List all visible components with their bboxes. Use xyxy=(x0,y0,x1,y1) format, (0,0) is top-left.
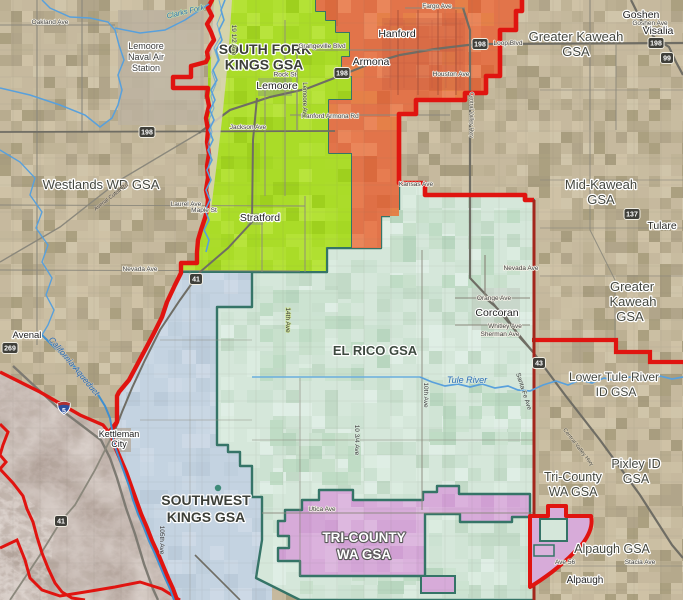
svg-text:10 3/4 Ave: 10 3/4 Ave xyxy=(353,425,360,456)
svg-text:KINGS GSA: KINGS GSA xyxy=(225,57,304,73)
svg-text:5: 5 xyxy=(62,408,66,415)
svg-text:198: 198 xyxy=(650,41,662,48)
svg-text:TRI-COUNTY: TRI-COUNTY xyxy=(322,530,405,545)
svg-text:Alpaugh: Alpaugh xyxy=(567,575,604,586)
svg-text:Jackson Ave: Jackson Ave xyxy=(230,124,267,131)
svg-text:Lemoore: Lemoore xyxy=(256,80,298,92)
svg-text:Lemoore Ave: Lemoore Ave xyxy=(301,82,307,118)
svg-text:Central Valley Hwy: Central Valley Hwy xyxy=(468,92,474,138)
svg-text:Stacia Ave: Stacia Ave xyxy=(625,559,656,566)
svg-text:Orange Ave: Orange Ave xyxy=(477,295,512,302)
svg-text:269: 269 xyxy=(4,346,16,353)
svg-text:Rock St: Rock St xyxy=(274,72,297,79)
svg-text:105th Ave: 105th Ave xyxy=(158,526,165,555)
svg-text:Mid-Kaweah: Mid-Kaweah xyxy=(565,177,637,192)
svg-text:Hanford: Hanford xyxy=(378,28,416,40)
svg-text:Nevada Ave: Nevada Ave xyxy=(504,265,539,272)
svg-text:Westlands WD GSA: Westlands WD GSA xyxy=(43,177,160,192)
svg-text:Kettleman: Kettleman xyxy=(99,429,140,439)
svg-text:Utica Ave: Utica Ave xyxy=(308,506,336,513)
svg-text:Maple St: Maple St xyxy=(191,207,217,214)
svg-text:Oakland Ave: Oakland Ave xyxy=(32,19,69,26)
svg-text:GSA: GSA xyxy=(587,192,615,207)
svg-text:Corcoran: Corcoran xyxy=(475,307,518,319)
svg-text:Whitley Ave: Whitley Ave xyxy=(488,323,522,330)
svg-text:43: 43 xyxy=(535,361,543,368)
svg-text:198: 198 xyxy=(141,130,153,137)
svg-text:Loop Blvd: Loop Blvd xyxy=(494,40,523,47)
svg-text:Alpaugh GSA: Alpaugh GSA xyxy=(574,542,650,556)
svg-text:99: 99 xyxy=(663,56,671,63)
svg-text:41: 41 xyxy=(192,277,200,284)
svg-text:Houston Ave: Houston Ave xyxy=(433,71,470,78)
svg-text:Sherman Ave: Sherman Ave xyxy=(481,331,520,338)
svg-text:SOUTHWEST: SOUTHWEST xyxy=(161,492,251,508)
svg-text:Stratford: Stratford xyxy=(240,212,280,224)
svg-text:Kansas Ave: Kansas Ave xyxy=(399,181,434,188)
svg-text:198: 198 xyxy=(336,71,348,78)
svg-text:KINGS GSA: KINGS GSA xyxy=(167,509,246,525)
svg-text:19 1/2 Ave: 19 1/2 Ave xyxy=(230,25,237,56)
svg-text:Lower Tule River: Lower Tule River xyxy=(569,370,659,384)
svg-text:Kaweah: Kaweah xyxy=(610,294,657,309)
svg-text:City: City xyxy=(111,439,127,449)
svg-text:GSA: GSA xyxy=(623,472,650,486)
svg-text:Armona: Armona xyxy=(353,56,390,68)
svg-text:Naval Air: Naval Air xyxy=(128,52,164,62)
svg-text:Greater Kaweah: Greater Kaweah xyxy=(529,29,624,44)
svg-text:Tri-County: Tri-County xyxy=(544,470,603,484)
svg-text:Fargo Ave: Fargo Ave xyxy=(422,3,452,10)
svg-text:WA GSA: WA GSA xyxy=(337,547,392,562)
svg-text:14th Ave: 14th Ave xyxy=(284,307,291,333)
svg-text:41: 41 xyxy=(57,519,65,526)
svg-text:Tule River: Tule River xyxy=(447,375,488,385)
svg-text:EL RICO GSA: EL RICO GSA xyxy=(333,343,418,358)
svg-text:Grangeville Blvd: Grangeville Blvd xyxy=(298,43,346,50)
svg-text:Pixley ID: Pixley ID xyxy=(611,457,660,471)
svg-text:Hanford Armona Rd: Hanford Armona Rd xyxy=(301,113,359,120)
svg-text:GSA: GSA xyxy=(616,309,644,324)
svg-text:Avenal: Avenal xyxy=(13,330,42,341)
svg-text:Goshen Ave: Goshen Ave xyxy=(632,20,668,27)
svg-text:Nevada Ave: Nevada Ave xyxy=(123,266,158,273)
svg-text:ID GSA: ID GSA xyxy=(596,385,637,399)
svg-text:WA GSA: WA GSA xyxy=(549,485,599,499)
svg-text:Ave 56: Ave 56 xyxy=(555,559,576,566)
svg-text:Tulare: Tulare xyxy=(647,220,677,232)
svg-text:198: 198 xyxy=(474,42,486,49)
svg-text:137: 137 xyxy=(626,212,638,219)
svg-text:Lemoore: Lemoore xyxy=(128,41,164,51)
svg-text:Greater: Greater xyxy=(610,279,655,294)
svg-text:GSA: GSA xyxy=(562,44,590,59)
svg-text:10th Ave: 10th Ave xyxy=(422,382,429,408)
svg-text:Station: Station xyxy=(132,63,160,73)
